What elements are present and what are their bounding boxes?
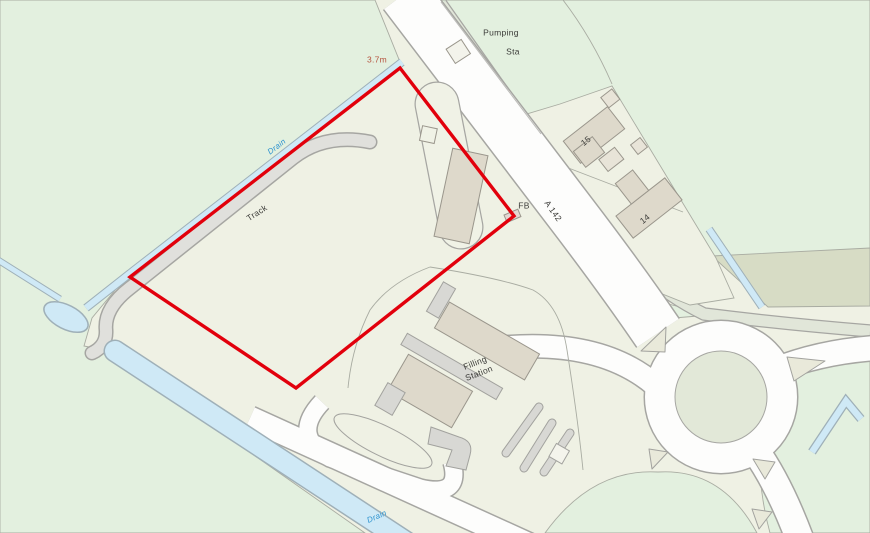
map-stage: PumpingSta3.7mDrainTrackFBA 1421514Filli… bbox=[0, 0, 870, 533]
site-small-structure bbox=[419, 126, 437, 144]
roundabout-centre-island bbox=[675, 351, 767, 443]
map-canvas bbox=[0, 0, 870, 533]
